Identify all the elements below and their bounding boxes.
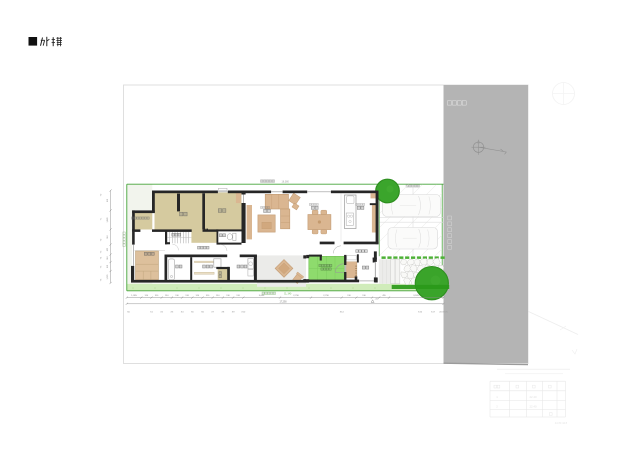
- svg-text:xx: xx: [176, 288, 178, 290]
- svg-text:xx: xx: [352, 288, 354, 290]
- svg-text:44 80 44 8: 44 80 44 8: [555, 421, 568, 425]
- svg-text:xx: xx: [154, 288, 156, 290]
- svg-text:xx: xx: [242, 288, 244, 290]
- svg-text:2,730: 2,730: [293, 295, 299, 297]
- svg-text:3,185: 3,185: [413, 295, 419, 297]
- svg-text:17,290: 17,290: [279, 301, 287, 303]
- svg-text:22.40: 22.40: [530, 404, 537, 408]
- svg-text:(X18X19): (X18X19): [439, 311, 448, 313]
- svg-text:xx: xx: [374, 288, 376, 290]
- svg-text:16,380: 16,380: [282, 180, 290, 183]
- svg-text:xx: xx: [286, 288, 288, 290]
- svg-text:xx: xx: [198, 288, 200, 290]
- svg-text:1,365: 1,365: [131, 295, 137, 297]
- svg-text:3,640: 3,640: [259, 295, 265, 297]
- svg-text:1,820: 1,820: [107, 217, 109, 223]
- svg-text:1,365: 1,365: [107, 274, 109, 280]
- svg-text:xx: xx: [220, 288, 222, 290]
- svg-text:xx: xx: [132, 288, 134, 290]
- svg-text:xx: xx: [264, 288, 266, 290]
- svg-text:2,730: 2,730: [323, 295, 329, 297]
- svg-text:xx: xx: [330, 288, 332, 290]
- svg-text:xx: xx: [308, 288, 310, 290]
- svg-text:22.40: 22.40: [530, 395, 537, 399]
- svg-text:CL 340: CL 340: [284, 293, 292, 295]
